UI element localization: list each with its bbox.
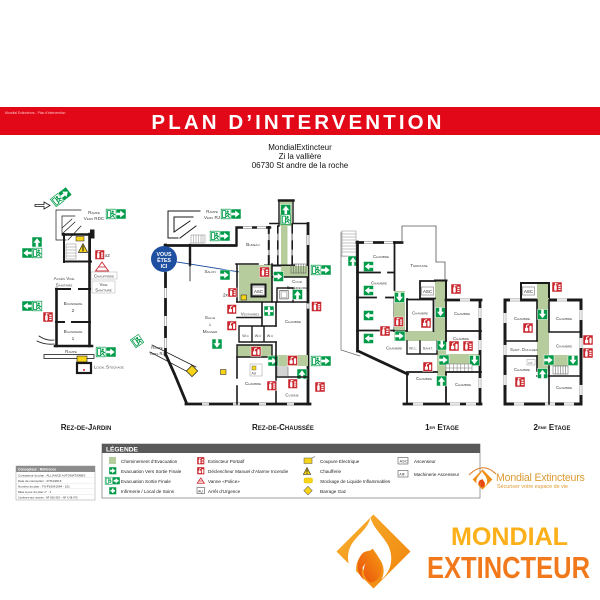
svg-text:Rampe: Rampe	[65, 349, 77, 354]
svg-text:à: à	[209, 323, 211, 328]
svg-text:Coupure Electrique: Coupure Electrique	[320, 459, 360, 464]
svg-text:Chambre: Chambre	[453, 336, 469, 341]
svg-text:Vers RDC: Vers RDC	[84, 216, 105, 221]
svg-text:Sécuriser votre espace de vie: Sécuriser votre espace de vie	[497, 484, 568, 490]
svg-text:Zi la vallière: Zi la vallière	[279, 152, 322, 161]
svg-text:Vers RJ: Vers RJ	[204, 215, 220, 220]
svg-text:Rampe: Rampe	[206, 209, 218, 214]
svg-text:Mise à jour du plan n° : 1: Mise à jour du plan n° : 1	[18, 490, 52, 494]
svg-text:PLAN D’INTERVENTION: PLAN D’INTERVENTION	[151, 111, 444, 134]
svg-text:A⚙: A⚙	[528, 361, 533, 365]
svg-text:1: 1	[72, 336, 75, 342]
svg-text:Chambre: Chambre	[556, 316, 572, 321]
svg-text:Ascenseur: Ascenseur	[414, 459, 436, 464]
svg-text:Sanit.: Sanit.	[423, 347, 433, 351]
svg-text:Stockage de Liquide Inflammabl: Stockage de Liquide Inflammables	[320, 479, 391, 484]
svg-text:Concepteur du plan : ALLIANCE: Concepteur du plan : ALLIANCE AUTOMATISM…	[18, 473, 85, 477]
svg-text:Chambre: Chambre	[373, 254, 389, 259]
svg-text:Bureau: Bureau	[246, 242, 260, 248]
svg-text:Conforme aux normes : NF S60-3: Conforme aux normes : NF S60-303 – NF X …	[18, 495, 78, 499]
svg-text:06730 St andre de la roche: 06730 St andre de la roche	[252, 161, 349, 170]
svg-text:Terrasse: Terrasse	[410, 263, 427, 268]
svg-text:Sanitaire: Sanitaire	[95, 288, 112, 293]
svg-text:Date de conception : 27/04/201: Date de conception : 27/04/2016	[18, 479, 62, 483]
svg-text:W.c: W.c	[267, 334, 274, 338]
svg-text:Vanne «Police»: Vanne «Police»	[208, 479, 240, 484]
svg-text:AU: AU	[198, 489, 203, 493]
svg-text:Accès Vide: Accès Vide	[54, 276, 75, 281]
svg-text:Arrêt d’Urgence: Arrêt d’Urgence	[208, 489, 241, 494]
svg-text:Salle: Salle	[205, 315, 216, 321]
svg-text:Chambre: Chambre	[514, 316, 530, 321]
svg-text:LÉGENDE: LÉGENDE	[106, 444, 138, 453]
svg-text:Chaufferie: Chaufferie	[320, 469, 342, 474]
svg-text:Numéro du plan : TN-P16041994: Numéro du plan : TN-P16041994 - 101	[18, 485, 70, 489]
svg-text:Chaufferie: Chaufferie	[94, 274, 114, 279]
svg-text:Salon: Salon	[204, 269, 215, 275]
svg-text:ASC: ASC	[400, 459, 408, 464]
svg-text:Chambre: Chambre	[514, 367, 530, 372]
svg-text:MondialExtincteur: MondialExtincteur	[268, 143, 332, 152]
svg-text:W.c: W.c	[242, 334, 249, 338]
svg-text:Buanderie: Buanderie	[64, 329, 83, 335]
svg-text:Chambre: Chambre	[556, 344, 572, 349]
svg-text:Buanderie: Buanderie	[64, 301, 83, 307]
svg-text:Concepteur : Référence: Concepteur : Référence	[18, 468, 56, 472]
svg-text:Chambre: Chambre	[556, 385, 572, 390]
svg-text:Chambre: Chambre	[455, 382, 471, 387]
svg-text:Chambre: Chambre	[454, 311, 470, 316]
svg-text:Chambre: Chambre	[412, 311, 428, 316]
svg-text:Infirmerie / Local de Soins: Infirmerie / Local de Soins	[121, 489, 175, 494]
svg-text:Manger: Manger	[203, 329, 218, 335]
svg-text:2x: 2x	[223, 293, 229, 298]
svg-text:Cour: Cour	[292, 279, 303, 284]
svg-text:x2: x2	[105, 253, 110, 258]
svg-text:Cheminement d’Evacuation: Cheminement d’Evacuation	[121, 459, 178, 464]
svg-text:Sanit. Douches: Sanit. Douches	[510, 347, 538, 352]
svg-text:Déclencheur Manuel d’Alarme In: Déclencheur Manuel d’Alarme Incendie	[208, 469, 289, 474]
svg-text:ÊTES: ÊTES	[157, 256, 171, 264]
svg-text:Evacuation Vers Sortie Finale: Evacuation Vers Sortie Finale	[121, 469, 182, 474]
svg-text:Sanitaire: Sanitaire	[56, 283, 73, 288]
svg-text:Vide: Vide	[100, 282, 108, 287]
svg-text:A⚙: A⚙	[399, 473, 405, 477]
svg-text:Cuisine: Cuisine	[285, 393, 298, 398]
svg-text:W.c: W.c	[255, 334, 262, 338]
svg-text:2: 2	[72, 308, 75, 314]
svg-text:Chambre: Chambre	[245, 381, 261, 387]
svg-text:Chambre: Chambre	[386, 346, 402, 351]
svg-text:Vestiaires: Vestiaires	[241, 312, 260, 317]
svg-text:Machinerie Ascenseur: Machinerie Ascenseur	[414, 472, 460, 477]
svg-text:Mondial Extincteurs: Mondial Extincteurs	[496, 472, 585, 484]
svg-text:Rampe: Rampe	[88, 210, 100, 215]
svg-text:AU: AU	[252, 372, 257, 376]
svg-text:EXTINCTEUR: EXTINCTEUR	[427, 550, 590, 585]
svg-text:Evacuation Sortie Finale: Evacuation Sortie Finale	[121, 479, 171, 484]
svg-text:Chambre: Chambre	[416, 376, 432, 381]
svg-text:Rez-de-Jardin: Rez-de-Jardin	[61, 423, 112, 432]
svg-text:Rampe: Rampe	[151, 345, 163, 350]
svg-text:Vers RJ: Vers RJ	[149, 351, 164, 356]
svg-text:Chambre: Chambre	[371, 281, 387, 286]
svg-text:Rez-de-Chaussée: Rez-de-Chaussée	[252, 423, 314, 432]
svg-text:Local Stockage: Local Stockage	[94, 365, 124, 370]
svg-text:MONDIAL: MONDIAL	[451, 523, 568, 551]
svg-text:Mondial Extincteurs - Plan d'i: Mondial Extincteurs - Plan d'interventio…	[5, 111, 66, 115]
svg-text:Barrage Gaz: Barrage Gaz	[320, 489, 347, 494]
svg-text:W.c.: W.c.	[409, 347, 417, 351]
svg-text:Chambre: Chambre	[285, 319, 301, 324]
svg-text:Extincteur Portatif: Extincteur Portatif	[208, 459, 245, 464]
svg-text:ICI: ICI	[161, 264, 168, 270]
